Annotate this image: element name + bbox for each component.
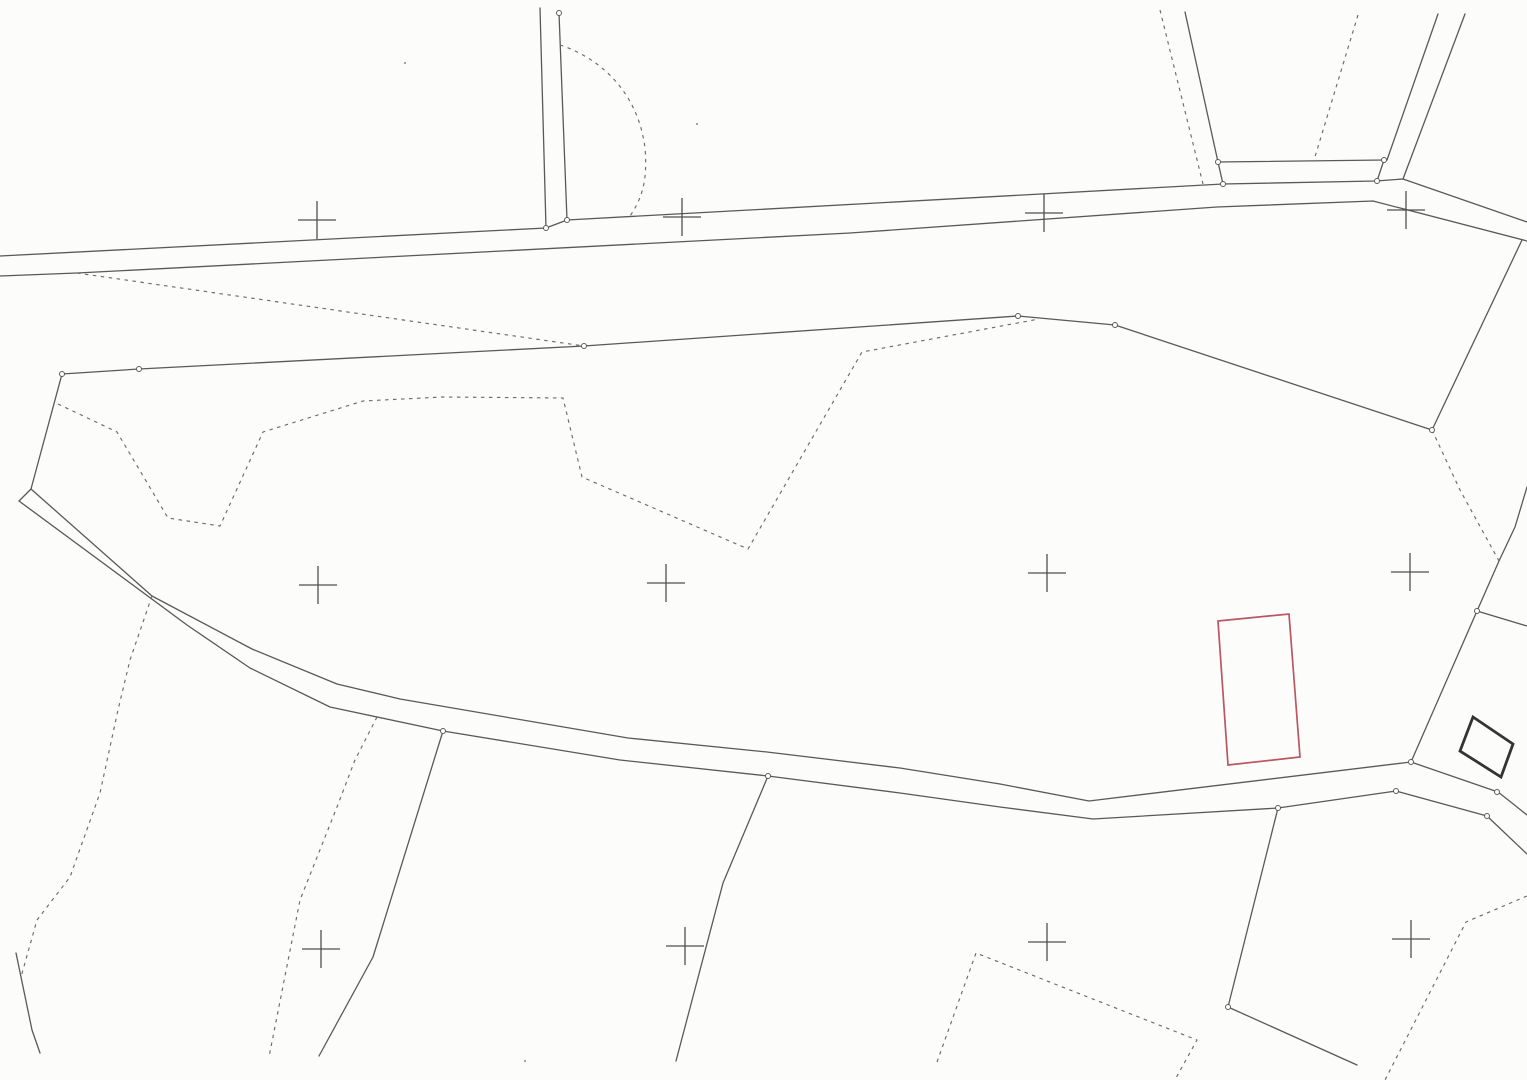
survey-node	[1226, 1005, 1231, 1010]
paper-background	[0, 0, 1527, 1080]
scan-speck	[524, 1060, 526, 1062]
scan-speck	[696, 123, 698, 125]
survey-node	[1221, 182, 1226, 187]
scan-speck	[404, 62, 406, 64]
survey-node	[441, 729, 446, 734]
survey-node	[1409, 760, 1414, 765]
survey-node	[582, 344, 587, 349]
survey-node	[1394, 789, 1399, 794]
survey-node	[557, 11, 562, 16]
survey-node	[544, 226, 549, 231]
cadastral-map-svg	[0, 0, 1527, 1080]
survey-node	[60, 372, 65, 377]
survey-node	[565, 218, 570, 223]
survey-node	[766, 774, 771, 779]
survey-node	[1485, 814, 1490, 819]
survey-node	[137, 367, 142, 372]
survey-node	[1382, 158, 1387, 163]
survey-node	[1216, 160, 1221, 165]
survey-node	[1375, 179, 1380, 184]
survey-node	[1276, 806, 1281, 811]
cadastral-map-scan	[0, 0, 1527, 1080]
survey-node	[1016, 314, 1021, 319]
survey-node	[1495, 790, 1500, 795]
survey-node	[1430, 428, 1435, 433]
survey-node	[1475, 609, 1480, 614]
survey-node	[1113, 323, 1118, 328]
